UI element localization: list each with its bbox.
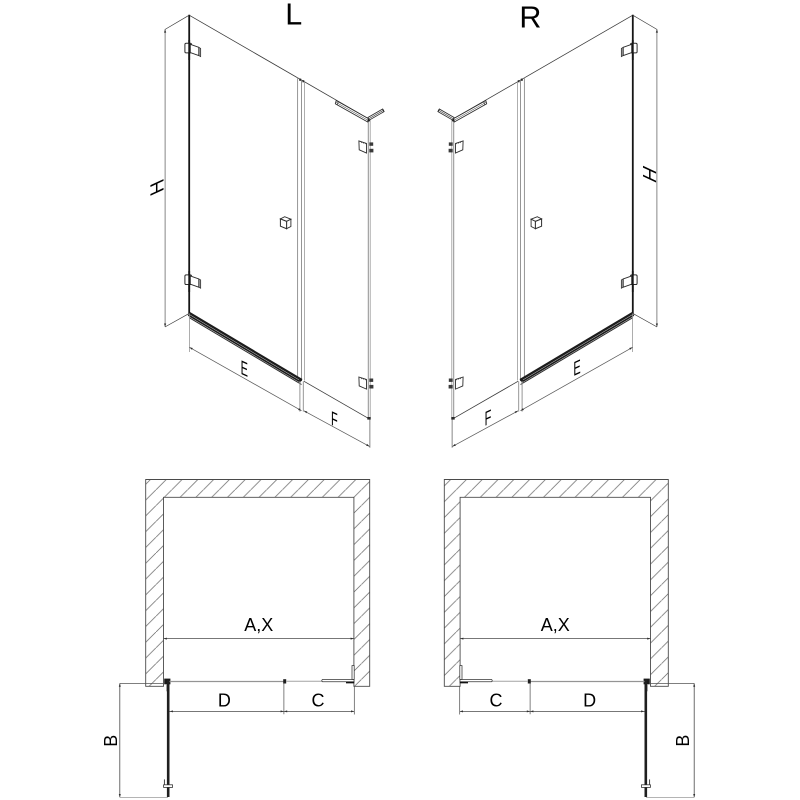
svg-text:A,X: A,X	[541, 615, 570, 635]
svg-text:D: D	[583, 691, 596, 711]
svg-text:E: E	[573, 355, 580, 381]
svg-text:C: C	[312, 691, 325, 711]
svg-text:R: R	[519, 1, 541, 35]
svg-text:F: F	[331, 406, 338, 432]
svg-text:H: H	[638, 162, 659, 185]
svg-text:B: B	[101, 735, 121, 747]
svg-text:C: C	[490, 691, 503, 711]
svg-text:F: F	[485, 405, 492, 431]
svg-text:E: E	[241, 356, 248, 382]
svg-text:A,X: A,X	[244, 615, 273, 635]
svg-text:L: L	[285, 0, 302, 32]
svg-text:B: B	[673, 735, 693, 747]
svg-text:D: D	[218, 691, 231, 711]
